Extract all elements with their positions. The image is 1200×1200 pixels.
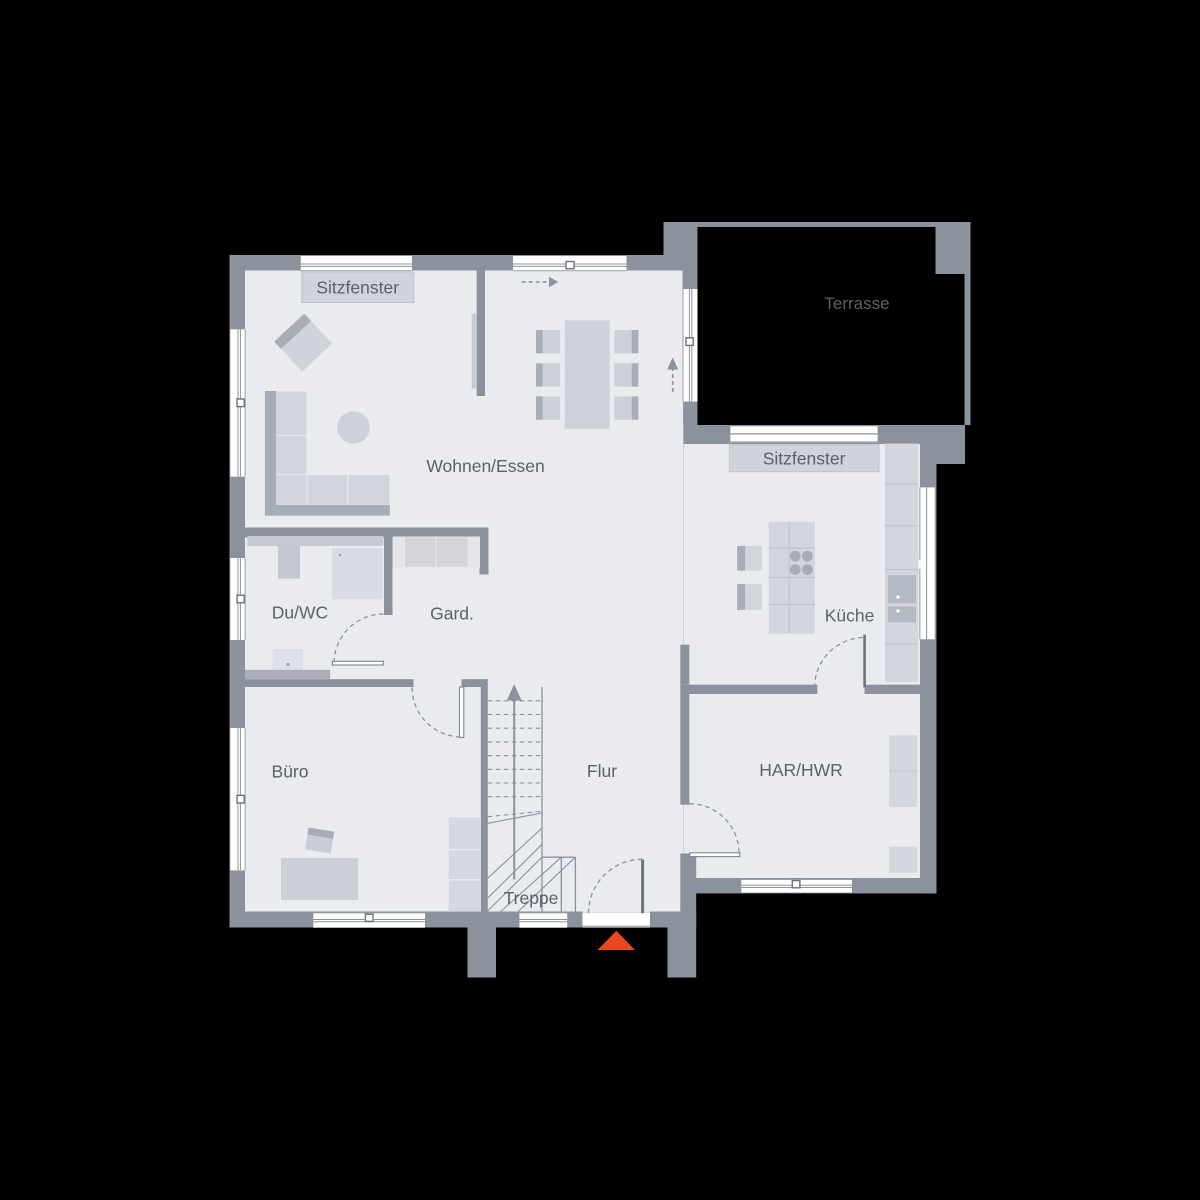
svg-text:Flur: Flur (587, 761, 617, 781)
svg-text:Terrasse: Terrasse (824, 294, 889, 313)
svg-text:Sitzfenster: Sitzfenster (763, 449, 846, 469)
svg-text:Wohnen/Essen: Wohnen/Essen (426, 456, 544, 476)
svg-text:Büro: Büro (272, 762, 309, 782)
svg-text:HAR/HWR: HAR/HWR (759, 760, 843, 780)
svg-text:Gard.: Gard. (430, 604, 474, 624)
svg-text:Du/WC: Du/WC (272, 603, 328, 623)
svg-text:Sitzfenster: Sitzfenster (316, 278, 399, 298)
svg-text:Küche: Küche (825, 606, 875, 626)
svg-text:Treppe: Treppe (504, 888, 559, 908)
